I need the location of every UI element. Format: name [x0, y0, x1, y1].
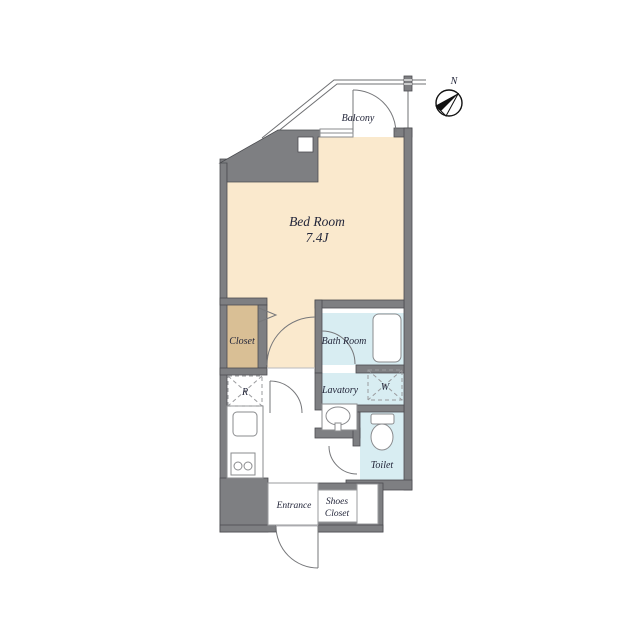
shoes-closet-label-1: Shoes: [326, 497, 348, 507]
washbasin-bowl-icon: [326, 407, 350, 425]
wall-closet-bottom: [220, 368, 267, 375]
wall-right: [404, 128, 412, 490]
wall-left: [220, 159, 227, 532]
stove-burner-icon: [244, 462, 252, 470]
utility-shaft-box: [357, 484, 378, 524]
wall-bedroom-bath: [315, 300, 404, 308]
lavatory-label: Lavatory: [321, 385, 359, 396]
balcony-door-arc: [353, 90, 396, 132]
balcony-label: Balcony: [342, 113, 375, 124]
wall-closet-right: [258, 305, 267, 368]
toilet-bowl-icon: [371, 424, 393, 450]
wall-closet-top: [220, 298, 267, 305]
entrance-label: Entrance: [276, 501, 312, 511]
refrigerator-label: R: [241, 387, 248, 398]
stove-burner-icon: [234, 462, 242, 470]
wall-toilet-top: [353, 405, 404, 412]
sliding-window-2: [320, 133, 353, 137]
wall-bath-lavatory: [356, 365, 404, 373]
wall-bottom-left-block: [220, 478, 268, 532]
toilet-label: Toilet: [371, 460, 394, 471]
compass-north-label: N: [450, 76, 459, 87]
bathroom-top-strip: [322, 308, 404, 313]
toilet-tank-icon: [371, 414, 394, 424]
sliding-window: [320, 129, 353, 133]
washbasin-faucet-icon: [335, 423, 341, 431]
shoes-closet-label-2: Closet: [325, 509, 350, 519]
pillar: [298, 137, 313, 152]
wall-lavatory-left: [315, 373, 322, 410]
toilet-door-arc: [329, 446, 357, 474]
floorplan-canvas: N Balcony Bed Room 7.4J Closet Bath Room…: [0, 0, 640, 640]
bathtub-icon: [373, 314, 401, 362]
compass-icon: N: [436, 76, 462, 116]
lavatory-door-arc: [270, 381, 302, 413]
entrance-door-arc: [276, 526, 318, 568]
bathroom-label: Bath Room: [322, 336, 367, 347]
wall-bottom-2: [318, 525, 383, 532]
bedroom-size-label: 7.4J: [306, 230, 330, 245]
kitchen-sink-icon: [233, 412, 257, 436]
floorplan-drawing: N Balcony Bed Room 7.4J Closet Bath Room…: [0, 0, 640, 640]
wall-bottom-1: [220, 525, 276, 532]
closet-label: Closet: [229, 336, 255, 347]
bedroom-label: Bed Room: [289, 214, 345, 229]
